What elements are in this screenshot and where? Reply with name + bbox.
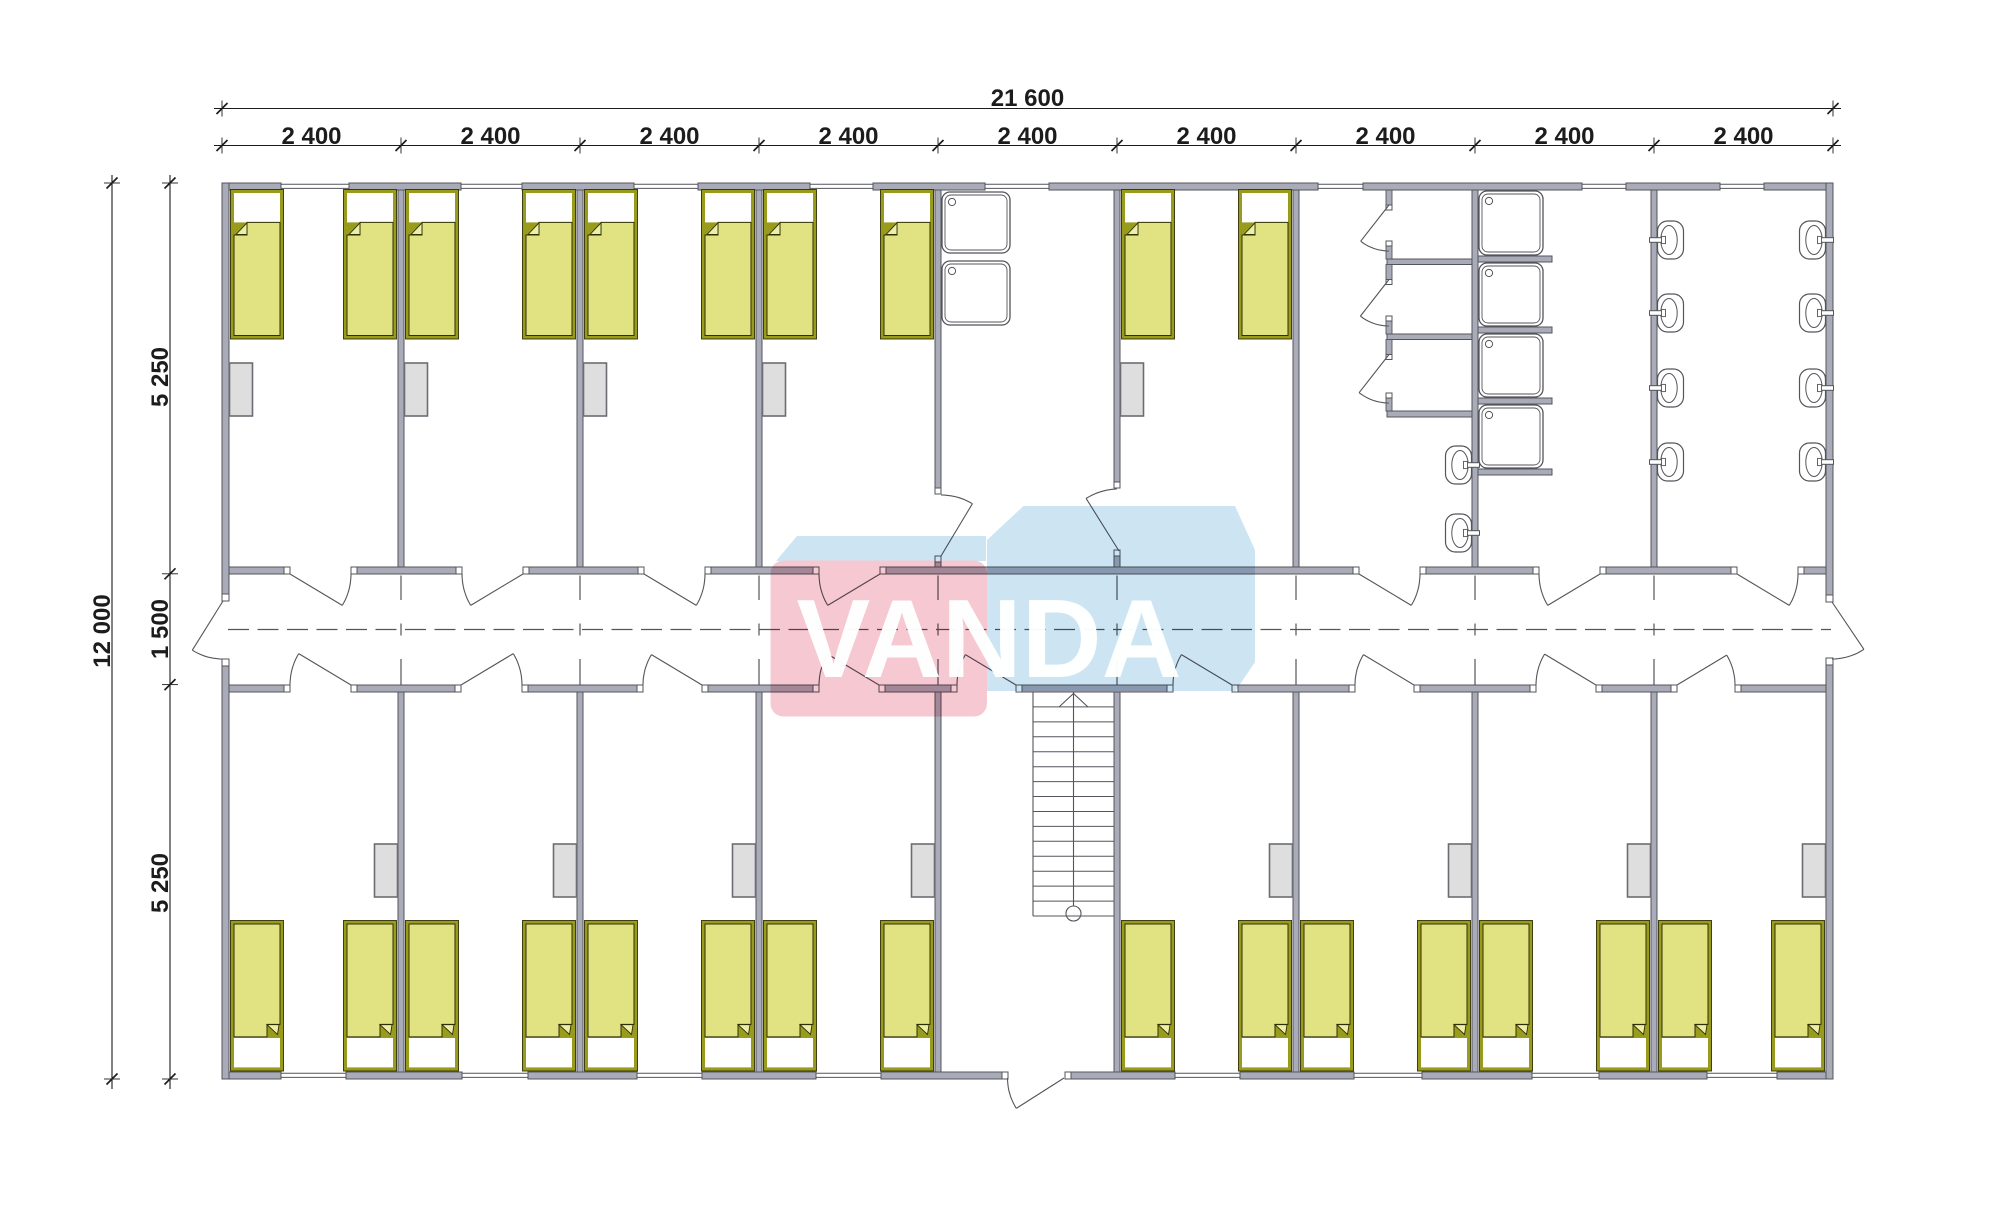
svg-text:2 400: 2 400 bbox=[818, 123, 878, 150]
svg-text:VANDA: VANDA bbox=[797, 577, 1182, 701]
svg-text:5 250: 5 250 bbox=[147, 853, 174, 913]
svg-text:2 400: 2 400 bbox=[1534, 123, 1594, 150]
svg-text:2 400: 2 400 bbox=[1176, 123, 1236, 150]
svg-text:2 400: 2 400 bbox=[997, 123, 1057, 150]
svg-text:2 400: 2 400 bbox=[1713, 123, 1773, 150]
svg-text:1 500: 1 500 bbox=[147, 599, 174, 659]
svg-text:5 250: 5 250 bbox=[147, 347, 174, 407]
svg-text:12 000: 12 000 bbox=[89, 594, 116, 667]
svg-text:2 400: 2 400 bbox=[460, 123, 520, 150]
svg-text:2 400: 2 400 bbox=[639, 123, 699, 150]
svg-text:2 400: 2 400 bbox=[1355, 123, 1415, 150]
svg-text:2 400: 2 400 bbox=[281, 123, 341, 150]
svg-text:21 600: 21 600 bbox=[991, 85, 1064, 112]
